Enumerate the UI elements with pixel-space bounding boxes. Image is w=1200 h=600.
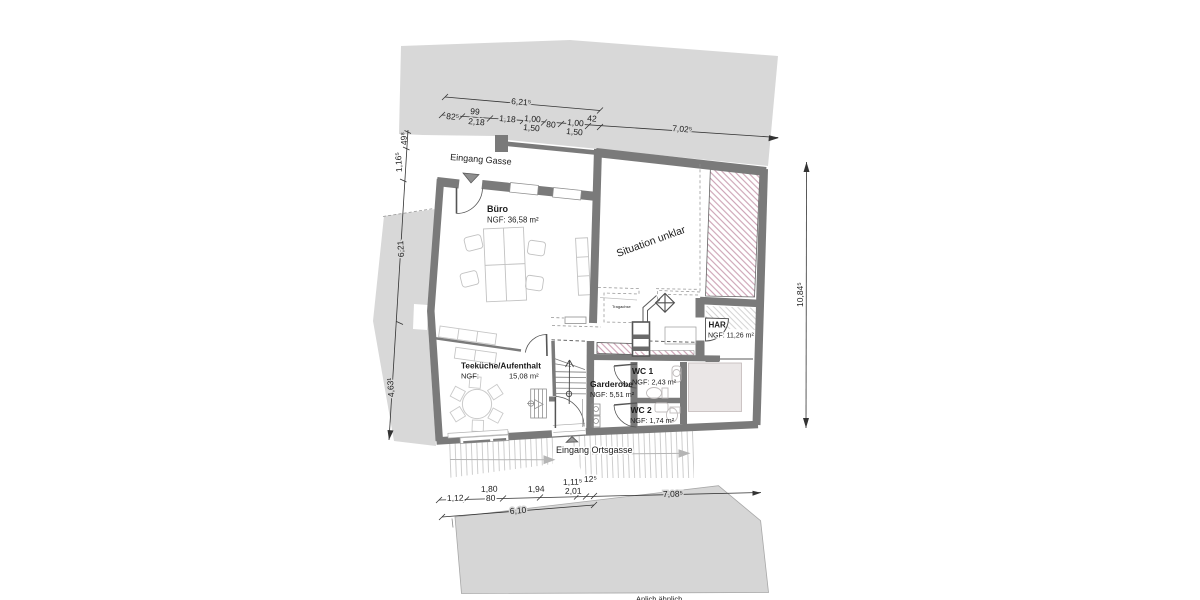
svg-text:Tragachse: Tragachse	[612, 304, 632, 309]
svg-text:NGF: 36,58 m²: NGF: 36,58 m²	[487, 216, 539, 225]
svg-text:NGF: 5,51 m²: NGF: 5,51 m²	[590, 390, 635, 399]
svg-text:HAR: HAR	[709, 321, 727, 330]
svg-text:80: 80	[546, 119, 557, 130]
svg-text:1,18: 1,18	[499, 113, 517, 124]
svg-text:6,21⁵: 6,21⁵	[511, 96, 532, 108]
svg-text:Büro: Büro	[487, 204, 508, 214]
svg-text:WC 2: WC 2	[631, 405, 653, 415]
svg-text:99: 99	[470, 106, 481, 117]
svg-text:82⁵: 82⁵	[446, 111, 460, 122]
svg-text:42: 42	[587, 113, 598, 124]
svg-text:6,21: 6,21	[395, 240, 406, 257]
svg-text:WC 1: WC 1	[632, 366, 654, 376]
svg-text:Eingang Gasse: Eingang Gasse	[450, 152, 512, 167]
svg-text:7,08⁵: 7,08⁵	[663, 489, 683, 499]
svg-text:2,18: 2,18	[468, 116, 486, 127]
svg-text:NGF:: NGF:	[461, 372, 479, 381]
svg-text:NGF: 2,43 m²: NGF: 2,43 m²	[632, 378, 677, 387]
svg-text:12⁵: 12⁵	[584, 474, 597, 484]
svg-text:80: 80	[486, 493, 496, 503]
svg-text:Teeküche/Aufenthalt: Teeküche/Aufenthalt	[461, 362, 541, 371]
svg-text:Eingang Ortsgasse: Eingang Ortsgasse	[556, 445, 633, 455]
svg-text:NGF: 11,26 m²: NGF: 11,26 m²	[708, 333, 754, 340]
svg-text:2,01: 2,01	[565, 486, 582, 496]
svg-text:1,50: 1,50	[566, 126, 584, 137]
svg-text:15,08 m²: 15,08 m²	[509, 372, 539, 381]
svg-text:1,16⁵: 1,16⁵	[393, 152, 404, 173]
svg-text:49⁸: 49⁸	[398, 131, 409, 145]
svg-text:Anlich ähnlich: Anlich ähnlich	[636, 595, 682, 600]
svg-text:NGF: 1,74 m²: NGF: 1,74 m²	[630, 416, 675, 425]
svg-text:Garderobe: Garderobe	[590, 379, 633, 389]
svg-text:7,02⁵: 7,02⁵	[672, 123, 693, 135]
svg-text:6,10: 6,10	[509, 505, 527, 516]
svg-text:10,84⁵: 10,84⁵	[795, 282, 805, 307]
svg-text:4,63¹: 4,63¹	[385, 377, 396, 397]
svg-text:1,12: 1,12	[447, 493, 464, 503]
svg-text:1,50: 1,50	[523, 122, 541, 133]
svg-text:1,94: 1,94	[528, 484, 545, 494]
svg-text:Situation unklar: Situation unklar	[615, 224, 688, 260]
